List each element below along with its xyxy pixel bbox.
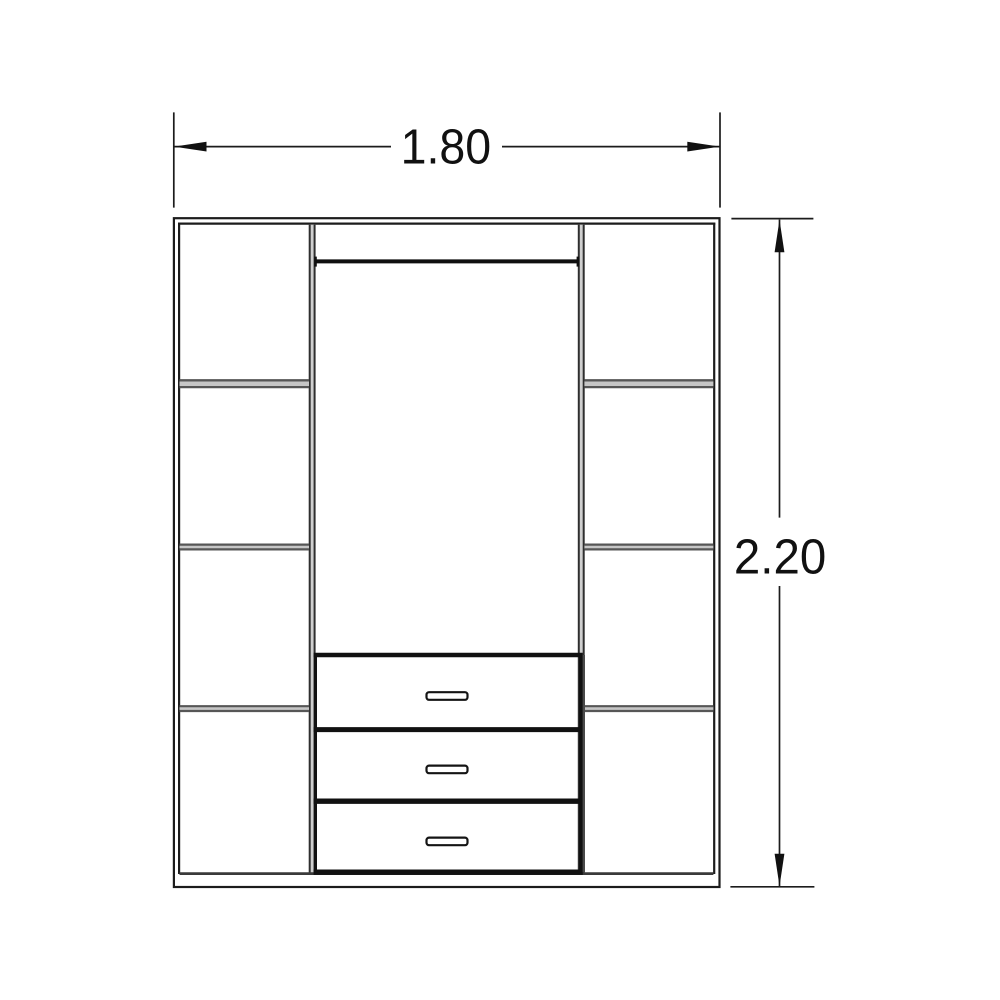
svg-text:2.20: 2.20 (734, 529, 826, 584)
svg-text:1.80: 1.80 (401, 120, 492, 175)
